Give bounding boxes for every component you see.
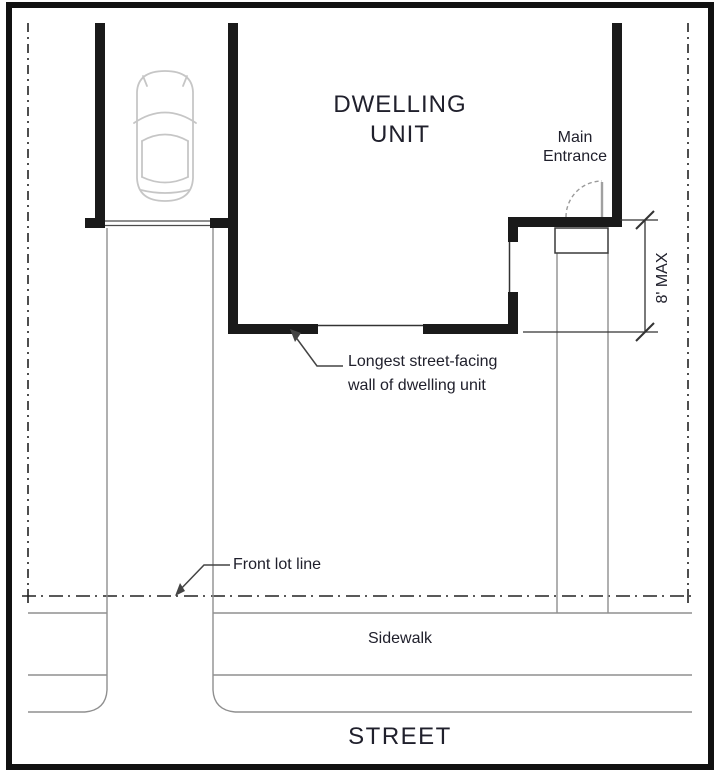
- car-trunk-line: [141, 190, 189, 193]
- windows: [318, 242, 510, 326]
- longest-wall-label-line2: wall of dwelling unit: [348, 374, 497, 398]
- dwelling-unit-label: DWELLING UNIT: [300, 90, 500, 150]
- entrance-wall: [508, 217, 622, 227]
- dwelling-unit-label-line1: DWELLING: [300, 90, 500, 120]
- longest-wall-label-line1: Longest street-facing: [348, 350, 497, 374]
- street-label: STREET: [300, 723, 500, 751]
- wall-label-leader: [292, 332, 343, 366]
- car-windshield-top: [134, 113, 196, 124]
- dimension-label: 8' MAX: [654, 218, 674, 338]
- dwelling-unit-label-line2: UNIT: [300, 120, 500, 150]
- car-rear-window: [142, 177, 188, 183]
- main-entrance-label-line1: Main: [525, 128, 625, 147]
- driveway-flare-left: [85, 690, 107, 712]
- front-lot-line-label: Front lot line: [233, 556, 321, 574]
- street-facing-wall-left: [228, 324, 318, 334]
- recess-wall-upper: [508, 227, 518, 242]
- recess-wall-lower: [508, 292, 518, 334]
- front-lot-label-arrowhead: [175, 583, 185, 596]
- dwelling-right-wall: [612, 23, 622, 217]
- dwelling-left-wall: [228, 23, 238, 324]
- garage-left-wall: [95, 23, 105, 218]
- street-facing-wall-right: [423, 324, 518, 334]
- main-entrance-label: Main Entrance: [525, 128, 625, 166]
- car-windshield-bottom: [142, 135, 188, 142]
- car-icon: [134, 71, 196, 201]
- sidewalk-label: Sidewalk: [330, 630, 470, 648]
- car-body: [137, 71, 193, 201]
- garage-left-jamb: [85, 218, 105, 228]
- door-swing-arc: [566, 181, 602, 217]
- entrance-door: [566, 181, 602, 217]
- site-plan-figure: DWELLING UNIT Main Entrance 8' MAX Longe…: [0, 0, 719, 776]
- garage-door: [105, 221, 210, 226]
- driveway-flare-right: [213, 690, 235, 712]
- leaders: [177, 332, 343, 593]
- car-hood-seam-right: [183, 76, 187, 86]
- longest-wall-label: Longest street-facing wall of dwelling u…: [348, 350, 497, 398]
- car-hood-seam-left: [143, 76, 147, 86]
- front-lot-label-leader: [177, 565, 230, 593]
- main-entrance-label-line2: Entrance: [525, 147, 625, 166]
- entry-stoop: [555, 228, 608, 253]
- building-walls: [85, 23, 622, 334]
